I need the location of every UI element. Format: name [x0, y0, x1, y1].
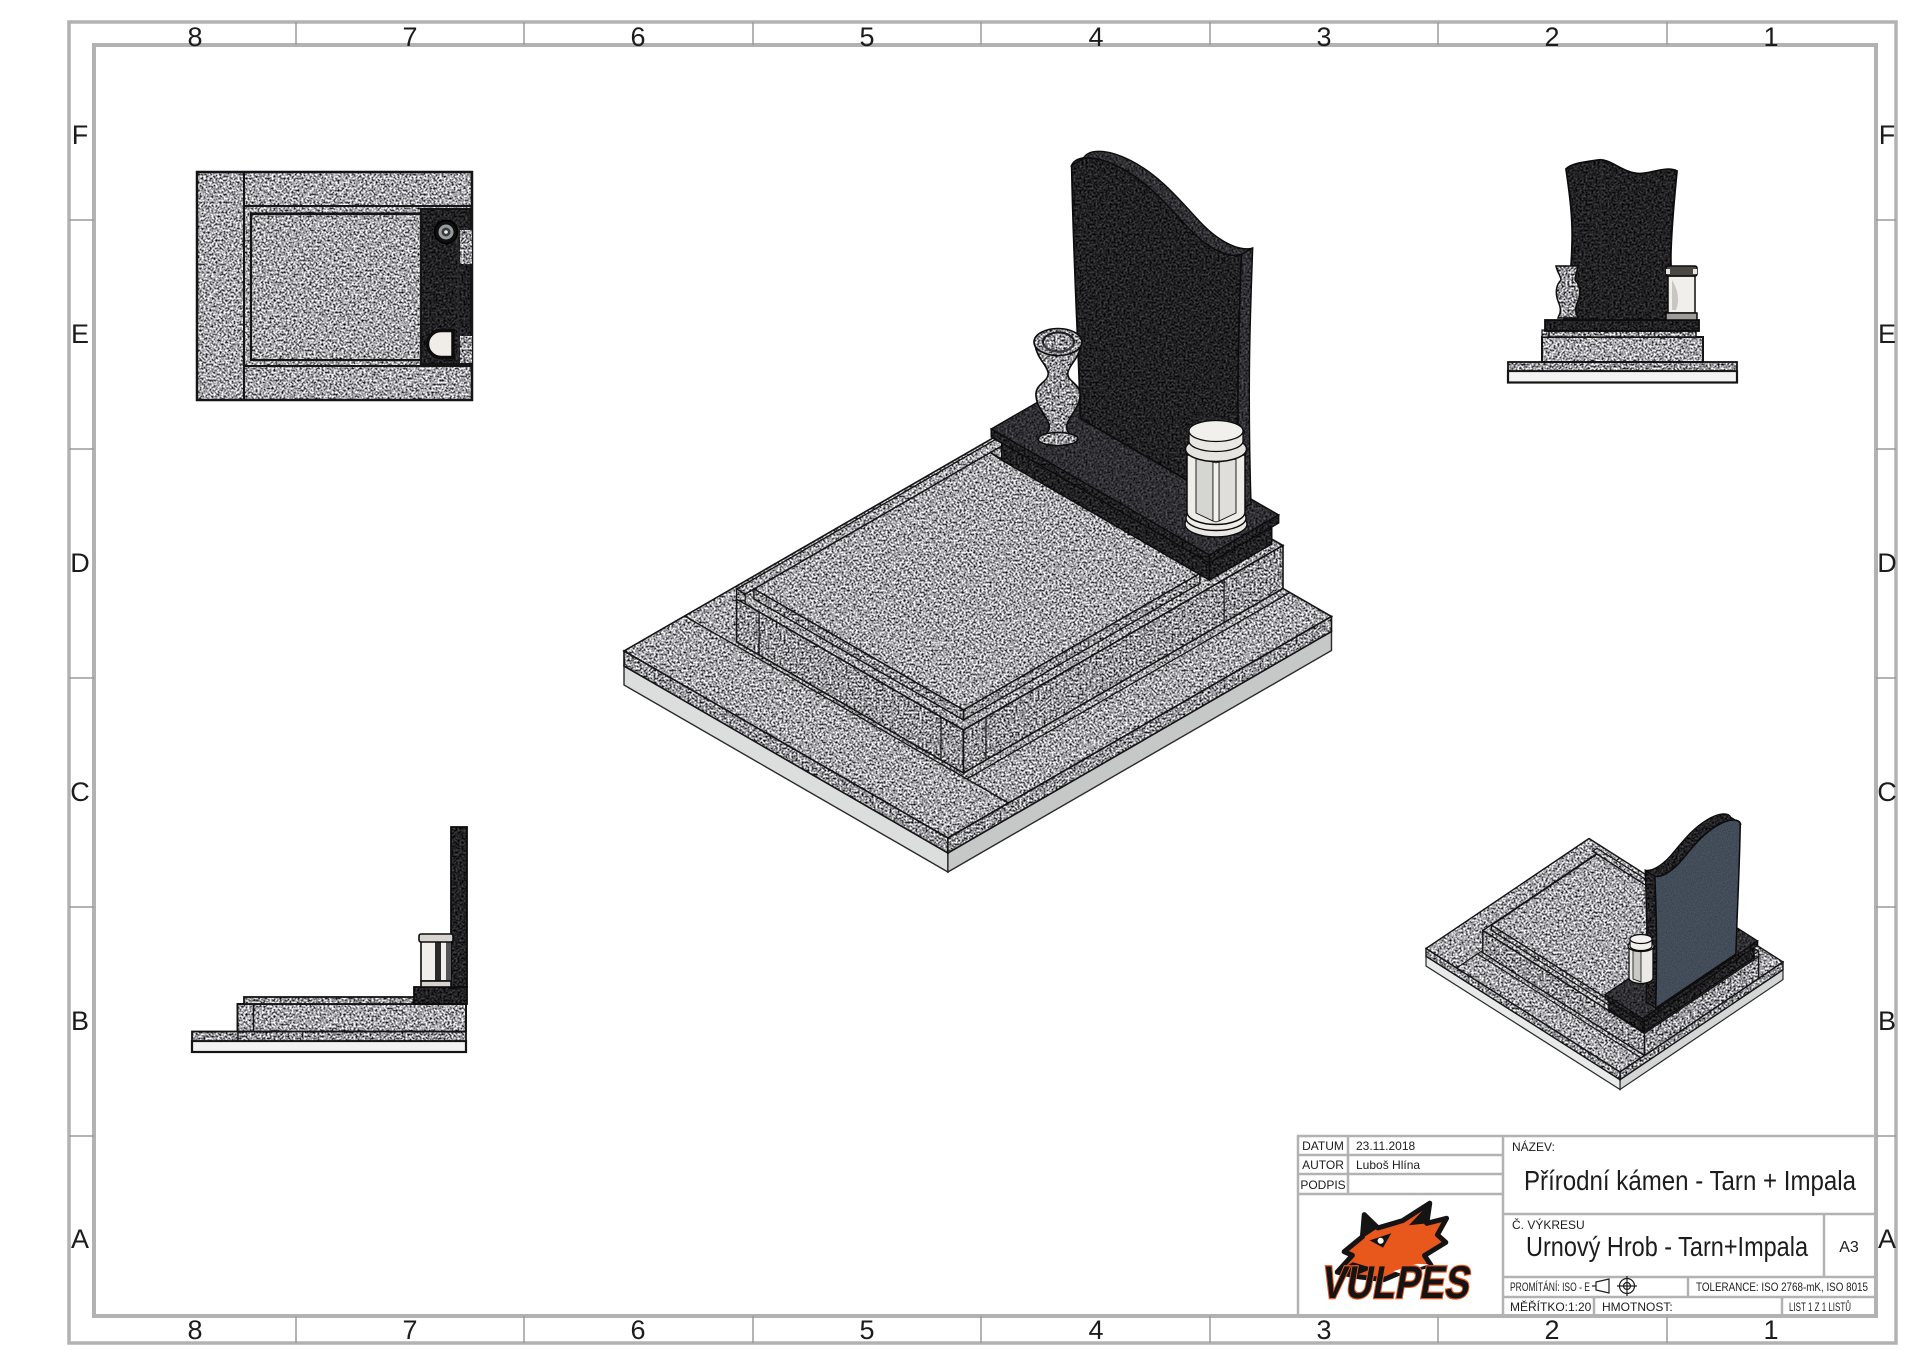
svg-text:6: 6	[630, 1315, 645, 1345]
svg-text:8: 8	[187, 22, 202, 52]
svg-text:A3: A3	[1839, 1239, 1859, 1256]
svg-text:E: E	[71, 319, 89, 349]
svg-text:F: F	[72, 120, 89, 150]
svg-text:VULPES: VULPES	[1318, 1256, 1475, 1308]
svg-text:7: 7	[402, 1315, 417, 1345]
svg-text:2: 2	[1544, 22, 1559, 52]
svg-text:E: E	[1878, 319, 1896, 349]
svg-text:1: 1	[1763, 1315, 1778, 1345]
svg-text:4: 4	[1088, 1315, 1103, 1345]
svg-text:C: C	[1877, 777, 1897, 807]
svg-text:HMOTNOST:: HMOTNOST:	[1602, 1300, 1673, 1314]
svg-text:MĚŘÍTKO:1:20: MĚŘÍTKO:1:20	[1510, 1299, 1592, 1314]
svg-text:Luboš Hlína: Luboš Hlína	[1356, 1158, 1420, 1172]
svg-text:7: 7	[402, 22, 417, 52]
svg-text:5: 5	[859, 1315, 874, 1345]
svg-text:D: D	[1877, 548, 1897, 578]
svg-text:DATUM: DATUM	[1302, 1139, 1344, 1153]
svg-text:23.11.2018: 23.11.2018	[1356, 1139, 1415, 1153]
svg-text:PODPIS: PODPIS	[1300, 1178, 1345, 1192]
svg-text:1: 1	[1763, 22, 1778, 52]
svg-text:5: 5	[859, 22, 874, 52]
svg-text:C: C	[70, 777, 90, 807]
svg-text:PROMÍTÁNÍ: ISO - E: PROMÍTÁNÍ: ISO - E	[1510, 1279, 1590, 1294]
svg-text:AUTOR: AUTOR	[1302, 1158, 1344, 1172]
svg-text:B: B	[1878, 1006, 1896, 1036]
svg-text:F: F	[1879, 120, 1896, 150]
svg-text:3: 3	[1316, 22, 1331, 52]
svg-text:4: 4	[1088, 22, 1103, 52]
svg-text:Přírodní kámen - Tarn + Impala: Přírodní kámen - Tarn + Impala	[1524, 1165, 1856, 1196]
svg-text:LIST 1 Z 1 LISTŮ: LIST 1 Z 1 LISTŮ	[1789, 1299, 1851, 1314]
svg-text:Urnový Hrob - Tarn+Impala: Urnový Hrob - Tarn+Impala	[1526, 1231, 1808, 1262]
svg-text:A: A	[71, 1224, 89, 1254]
svg-text:TOLERANCE: ISO 2768-mK, ISO 8: TOLERANCE: ISO 2768-mK, ISO 8015	[1696, 1280, 1868, 1294]
svg-text:B: B	[71, 1006, 89, 1036]
svg-text:2: 2	[1544, 1315, 1559, 1345]
svg-text:NÁZEV:: NÁZEV:	[1512, 1139, 1555, 1154]
svg-text:Č. VÝKRESU: Č. VÝKRESU	[1512, 1217, 1585, 1232]
svg-text:3: 3	[1316, 1315, 1331, 1345]
svg-text:D: D	[70, 548, 90, 578]
svg-text:6: 6	[630, 22, 645, 52]
svg-text:8: 8	[187, 1315, 202, 1345]
svg-text:A: A	[1878, 1224, 1896, 1254]
